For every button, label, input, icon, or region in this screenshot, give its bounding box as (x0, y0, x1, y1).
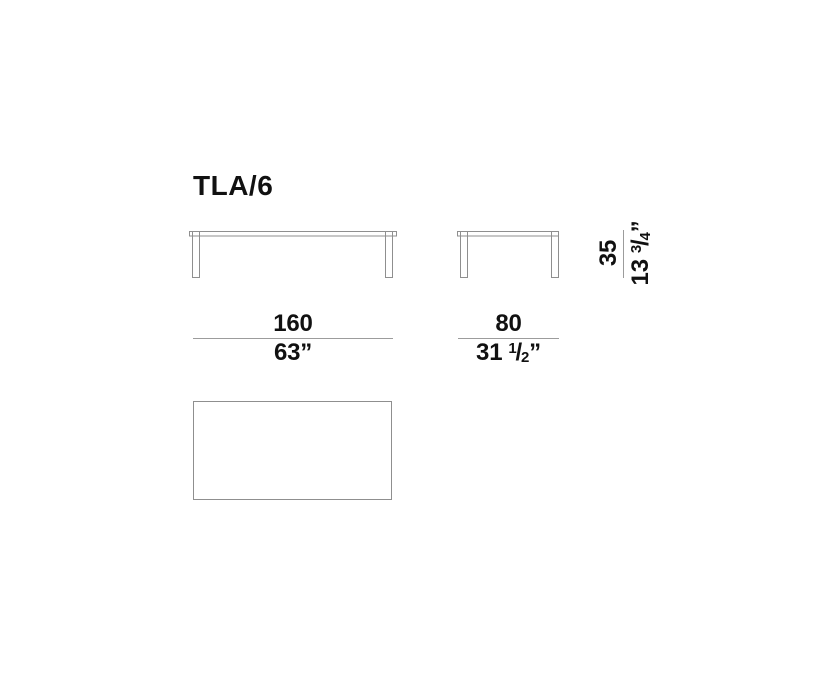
height-dimension: 35 133/4” (595, 208, 651, 298)
technical-drawing-canvas (0, 0, 840, 679)
depth-value-inches: 311/2” (458, 341, 559, 365)
side-elevation-view (458, 232, 559, 278)
height-inches-quote: ” (627, 221, 654, 233)
depth-inches-whole: 31 (476, 339, 502, 366)
side-left-leg (461, 232, 468, 278)
front-right-leg (386, 232, 393, 278)
height-fraction-denominator: 4 (637, 232, 654, 240)
width-value-inches: 63” (193, 341, 393, 365)
height-value-inches: 133/4” (623, 208, 660, 298)
side-tabletop (458, 232, 559, 237)
front-elevation-view (190, 232, 397, 278)
front-tabletop (190, 232, 397, 237)
depth-inches-quote: ” (529, 339, 541, 366)
top-view-outline (194, 402, 392, 500)
height-fraction-numerator: 3 (628, 245, 645, 253)
height-value-cm: 35 (595, 208, 623, 298)
front-left-leg (193, 232, 200, 278)
width-value-cm: 160 (193, 312, 393, 336)
depth-value-cm: 80 (458, 312, 559, 336)
height-inches-whole: 13 (627, 259, 654, 285)
depth-fraction-denominator: 2 (521, 349, 529, 366)
side-right-leg (552, 232, 559, 278)
